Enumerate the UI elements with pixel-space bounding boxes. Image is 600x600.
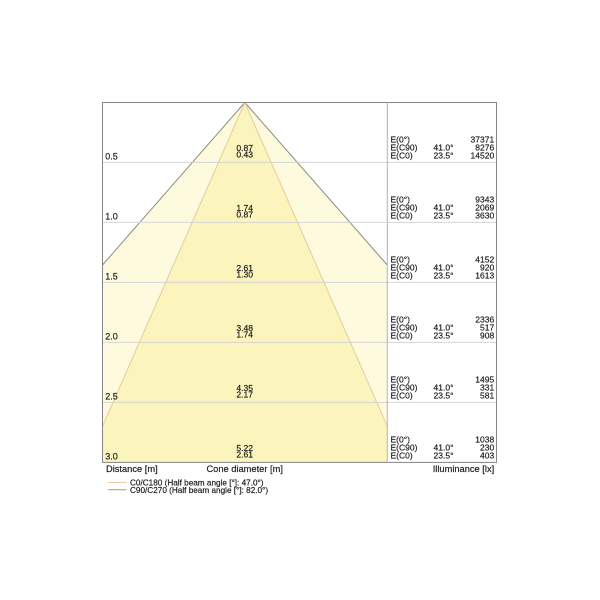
svg-text:Cone diameter [m]: Cone diameter [m] [206, 464, 282, 474]
svg-text:Distance [m]: Distance [m] [106, 464, 158, 474]
svg-text:908: 908 [480, 330, 494, 340]
svg-text:C90/C270 (Half beam angle [°]:: C90/C270 (Half beam angle [°]: 82.0°) [130, 486, 268, 495]
svg-text:1613: 1613 [475, 270, 494, 280]
svg-text:0.5: 0.5 [105, 152, 118, 162]
svg-text:E(C0): E(C0) [391, 450, 413, 460]
svg-text:2.5: 2.5 [105, 392, 118, 402]
svg-text:E(C0): E(C0) [391, 270, 413, 280]
svg-text:E(C0): E(C0) [391, 330, 413, 340]
svg-text:3630: 3630 [475, 210, 494, 220]
svg-text:Illuminance [lx]: Illuminance [lx] [433, 464, 495, 474]
svg-text:1.74: 1.74 [236, 329, 253, 339]
svg-text:2.61: 2.61 [236, 449, 253, 459]
svg-text:1.0: 1.0 [105, 212, 118, 222]
svg-text:0.87: 0.87 [236, 209, 253, 219]
svg-text:581: 581 [480, 390, 494, 400]
svg-text:2.17: 2.17 [236, 389, 253, 399]
svg-text:E(C0): E(C0) [391, 150, 413, 160]
svg-text:14520: 14520 [471, 150, 495, 160]
svg-text:0.43: 0.43 [236, 149, 253, 159]
svg-text:E(C0): E(C0) [391, 390, 413, 400]
svg-text:403: 403 [480, 450, 494, 460]
svg-text:3.0: 3.0 [105, 452, 118, 462]
svg-text:E(C0): E(C0) [391, 210, 413, 220]
svg-text:23.5°: 23.5° [434, 450, 454, 460]
svg-text:23.5°: 23.5° [434, 210, 454, 220]
svg-text:23.5°: 23.5° [434, 390, 454, 400]
svg-text:1.30: 1.30 [236, 269, 253, 279]
svg-text:1.5: 1.5 [105, 272, 118, 282]
svg-text:23.5°: 23.5° [434, 150, 454, 160]
svg-text:2.0: 2.0 [105, 332, 118, 342]
svg-text:23.5°: 23.5° [434, 270, 454, 280]
svg-text:23.5°: 23.5° [434, 330, 454, 340]
